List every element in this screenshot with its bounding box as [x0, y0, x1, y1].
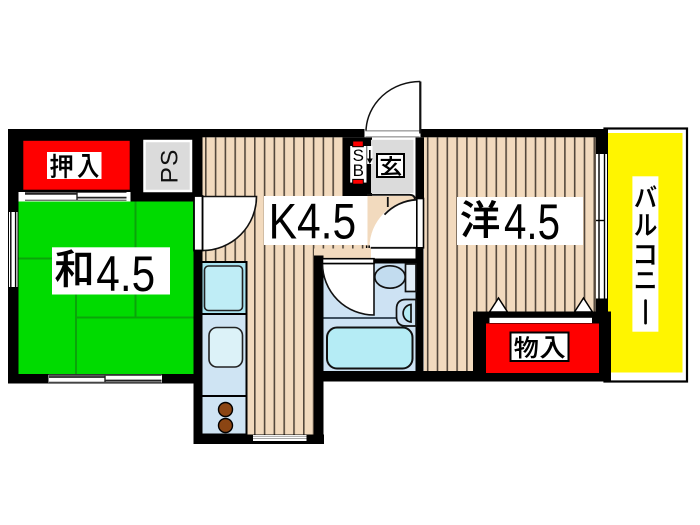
svg-text:B: B [353, 161, 364, 180]
svg-text:PS: PS [157, 149, 184, 184]
svg-text:4.5: 4.5 [504, 194, 560, 250]
svg-text:K4.5: K4.5 [269, 194, 357, 250]
svg-text:4.5: 4.5 [96, 246, 155, 302]
